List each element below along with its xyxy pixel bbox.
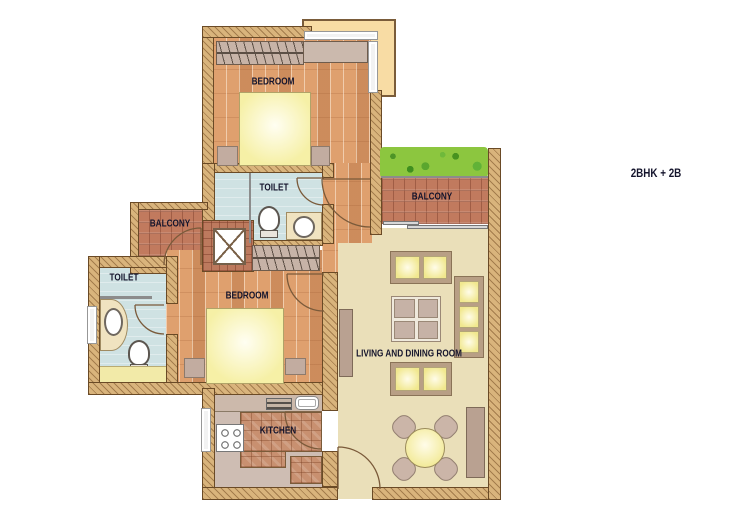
sofa-cushion <box>459 306 479 328</box>
wc-tank-toilet-mid <box>260 230 278 238</box>
sofa-cushion <box>423 367 448 391</box>
label-balcony-top: BALCONY <box>412 192 453 203</box>
coffee-table <box>391 296 441 342</box>
side-table <box>184 358 205 378</box>
side-table <box>285 358 306 375</box>
label-bedroom-top: BEDROOM <box>252 77 295 88</box>
wall-toilet-left-east-top <box>166 256 178 304</box>
window-bedroom-top-east <box>368 41 378 93</box>
wall-bedroom-top-north <box>202 26 312 38</box>
label-living-dining: LIVING AND DINING ROOM <box>356 349 462 360</box>
coffee-table-seat <box>418 321 439 340</box>
shower-strip-toilet-left <box>100 366 166 382</box>
wall-living-east <box>488 148 501 500</box>
coffee-table-seat <box>418 299 439 318</box>
label-toilet-mid: TOILET <box>259 183 288 194</box>
duct-shaft <box>213 228 246 265</box>
bed-bedroom-top <box>239 92 311 166</box>
wall-toilet-left-north <box>88 256 178 268</box>
balcony-top-edge-line <box>381 176 488 178</box>
label-bedroom-left: BEDROOM <box>226 291 269 302</box>
kitchen-vent-grill <box>266 398 292 410</box>
wc-toilet-mid <box>258 206 280 232</box>
kitchen-service-platform <box>290 456 322 484</box>
coffee-table-seat <box>394 321 415 340</box>
gas-stove <box>216 424 244 452</box>
sofa-cushion <box>459 331 479 353</box>
sideboard <box>466 407 485 478</box>
sliding-window-balcony-top-b <box>407 225 488 229</box>
dining-table <box>405 428 445 468</box>
floor-plan-canvas: BEDROOM TOILET BALCONY TOILET BEDROOM BA… <box>0 0 745 526</box>
bed-bedroom-left <box>206 308 284 384</box>
sofa-cushion <box>423 256 448 279</box>
sofa-two-seater-bottom <box>390 362 452 396</box>
plan-annotation: 2BHK + 2B <box>631 166 682 180</box>
wall-living-west-mid <box>322 272 338 411</box>
sofa-three-seater-right <box>454 276 484 358</box>
basin-toilet-mid <box>293 216 315 238</box>
label-balcony-left: BALCONY <box>150 219 191 230</box>
basin-toilet-left <box>104 308 123 336</box>
side-table <box>311 146 330 166</box>
entrance-threshold <box>337 488 372 499</box>
sofa-cushion <box>395 256 420 279</box>
sofa-two-seater-top <box>390 251 452 284</box>
wall-living-south <box>372 487 501 500</box>
sofa-cushion <box>395 367 420 391</box>
wall-toilet-mid-east-bot <box>322 204 334 244</box>
kitchen-sink <box>295 396 319 410</box>
window-bedroom-top-north <box>304 31 378 40</box>
wardrobe-bedroom-left <box>252 245 320 271</box>
label-toilet-left: TOILET <box>109 273 138 284</box>
bedroom2-doorway-floor <box>322 244 338 274</box>
tv-unit <box>339 309 353 377</box>
shelf-bedroom-top <box>303 41 368 63</box>
wardrobe-bedroom-top <box>216 41 304 65</box>
sofa-cushion <box>459 281 479 303</box>
window-kitchen-west <box>201 408 211 452</box>
side-table <box>217 146 238 166</box>
kitchen-platform-leg <box>240 452 286 468</box>
wall-bedroom-top-west <box>202 26 214 170</box>
toilet-mid-partition <box>249 173 251 243</box>
label-kitchen: KITCHEN <box>260 426 296 437</box>
window-toilet-left-west <box>87 306 97 344</box>
wall-balcony-left-north <box>130 202 208 210</box>
wall-kitchen-south <box>202 487 338 500</box>
coffee-table-seat <box>394 299 415 318</box>
wall-living-west-bot <box>322 451 338 487</box>
balcony-planter-hedge <box>380 147 488 178</box>
wc-toilet-left <box>128 340 150 366</box>
